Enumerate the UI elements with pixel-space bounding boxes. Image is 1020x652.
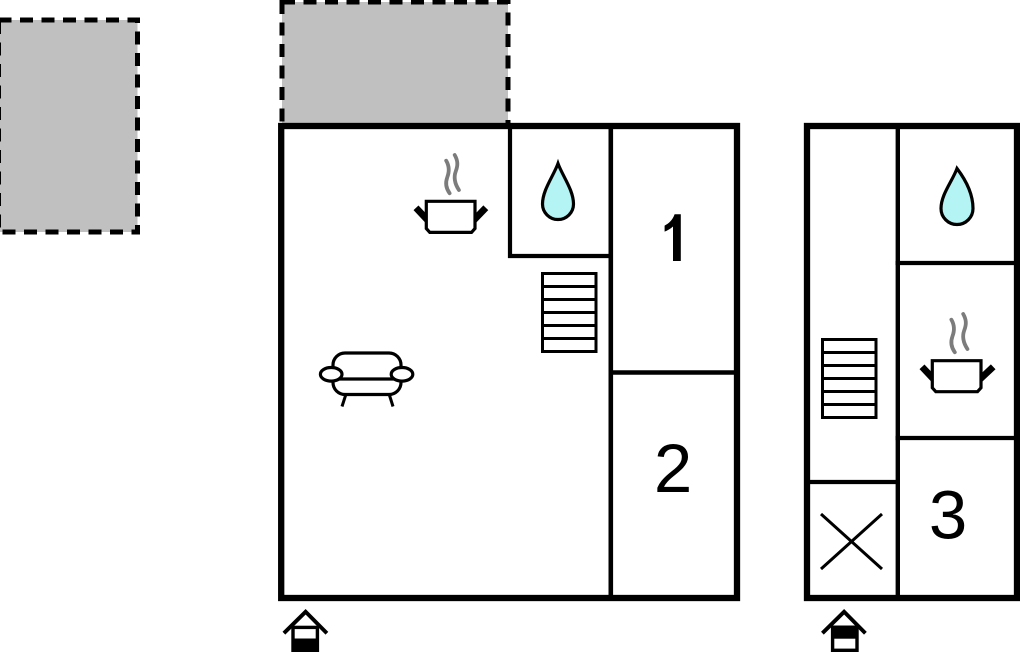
svg-text:2: 2 [654,430,692,507]
svg-text:3: 3 [929,477,967,554]
